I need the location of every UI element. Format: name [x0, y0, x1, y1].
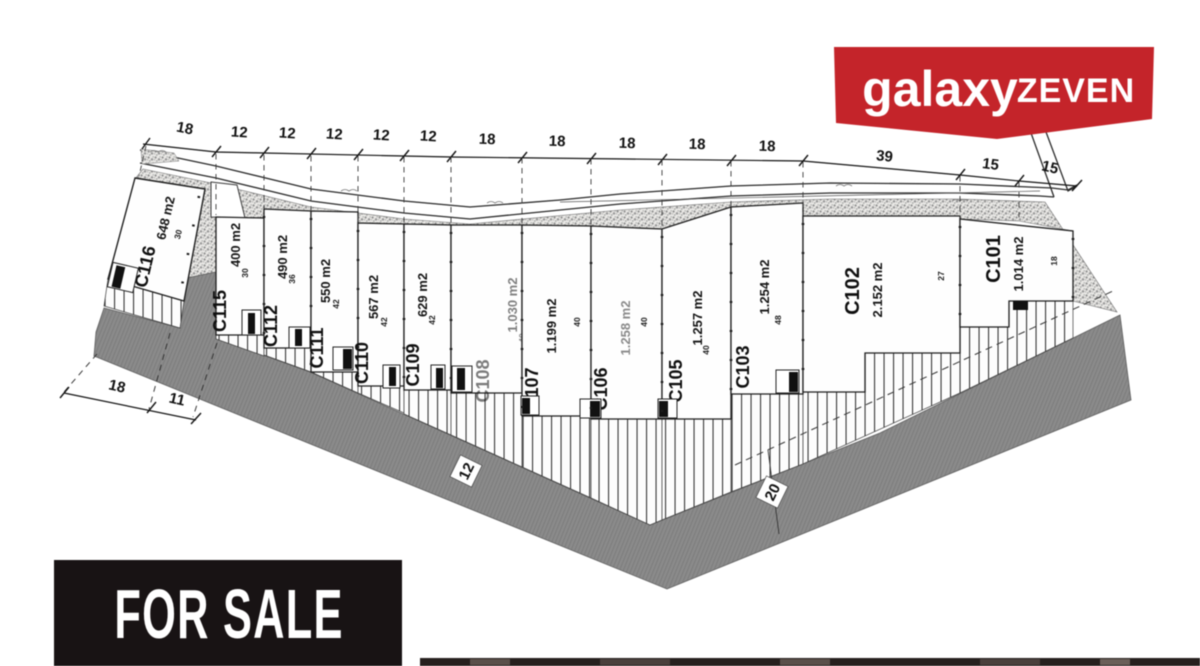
svg-text:42: 42: [427, 315, 437, 325]
svg-text:12: 12: [230, 123, 248, 141]
svg-text:36: 36: [287, 274, 297, 284]
svg-text:550 m2: 550 m2: [318, 259, 333, 303]
svg-text:C111: C111: [307, 327, 327, 368]
svg-text:C110: C110: [352, 342, 372, 384]
svg-text:C103: C103: [733, 345, 753, 388]
svg-text:18: 18: [549, 133, 566, 151]
svg-text:1.014 m2: 1.014 m2: [1011, 237, 1026, 292]
svg-text:1.254 m2: 1.254 m2: [757, 260, 772, 315]
svg-text:40: 40: [572, 317, 582, 327]
svg-text:42: 42: [331, 299, 341, 309]
svg-text:1.258 m2: 1.258 m2: [618, 301, 633, 356]
svg-text:1.030 m2: 1.030 m2: [505, 278, 520, 333]
svg-text:629 m2: 629 m2: [415, 273, 430, 317]
svg-text:15: 15: [981, 155, 1000, 174]
svg-text:30: 30: [240, 268, 250, 278]
svg-text:40: 40: [639, 317, 649, 327]
svg-text:galaxy: galaxy: [862, 61, 1018, 117]
svg-text:567 m2: 567 m2: [366, 275, 381, 319]
svg-text:18: 18: [1049, 256, 1059, 266]
svg-text:12: 12: [419, 127, 437, 145]
svg-text:48: 48: [773, 315, 783, 325]
svg-text:C102: C102: [842, 267, 864, 315]
svg-text:2.152 m2: 2.152 m2: [870, 263, 885, 318]
svg-text:C112: C112: [261, 305, 281, 347]
svg-text:12: 12: [372, 126, 390, 144]
svg-text:C101: C101: [983, 235, 1005, 283]
svg-text:C108: C108: [473, 359, 493, 402]
svg-text:39: 39: [875, 147, 893, 166]
svg-text:12: 12: [278, 124, 296, 142]
svg-text:27: 27: [936, 271, 946, 281]
svg-text:18: 18: [619, 135, 636, 153]
svg-text:18: 18: [175, 119, 195, 139]
svg-text:400 m2: 400 m2: [228, 223, 243, 267]
svg-text:C105: C105: [666, 359, 686, 402]
svg-text:C115: C115: [210, 290, 230, 332]
svg-text:FOR SALE: FOR SALE: [114, 575, 343, 653]
svg-text:1.199 m2: 1.199 m2: [544, 299, 559, 354]
svg-text:18: 18: [759, 138, 776, 156]
svg-text:1.257 m2: 1.257 m2: [690, 291, 705, 346]
svg-text:C109: C109: [403, 343, 423, 386]
svg-text:18: 18: [479, 131, 496, 149]
svg-text:12: 12: [325, 125, 343, 143]
svg-text:ZEVEN: ZEVEN: [1017, 72, 1135, 110]
svg-text:42: 42: [379, 317, 389, 327]
svg-text:40: 40: [701, 345, 711, 355]
svg-text:490 m2: 490 m2: [275, 235, 290, 279]
svg-text:18: 18: [689, 136, 706, 154]
